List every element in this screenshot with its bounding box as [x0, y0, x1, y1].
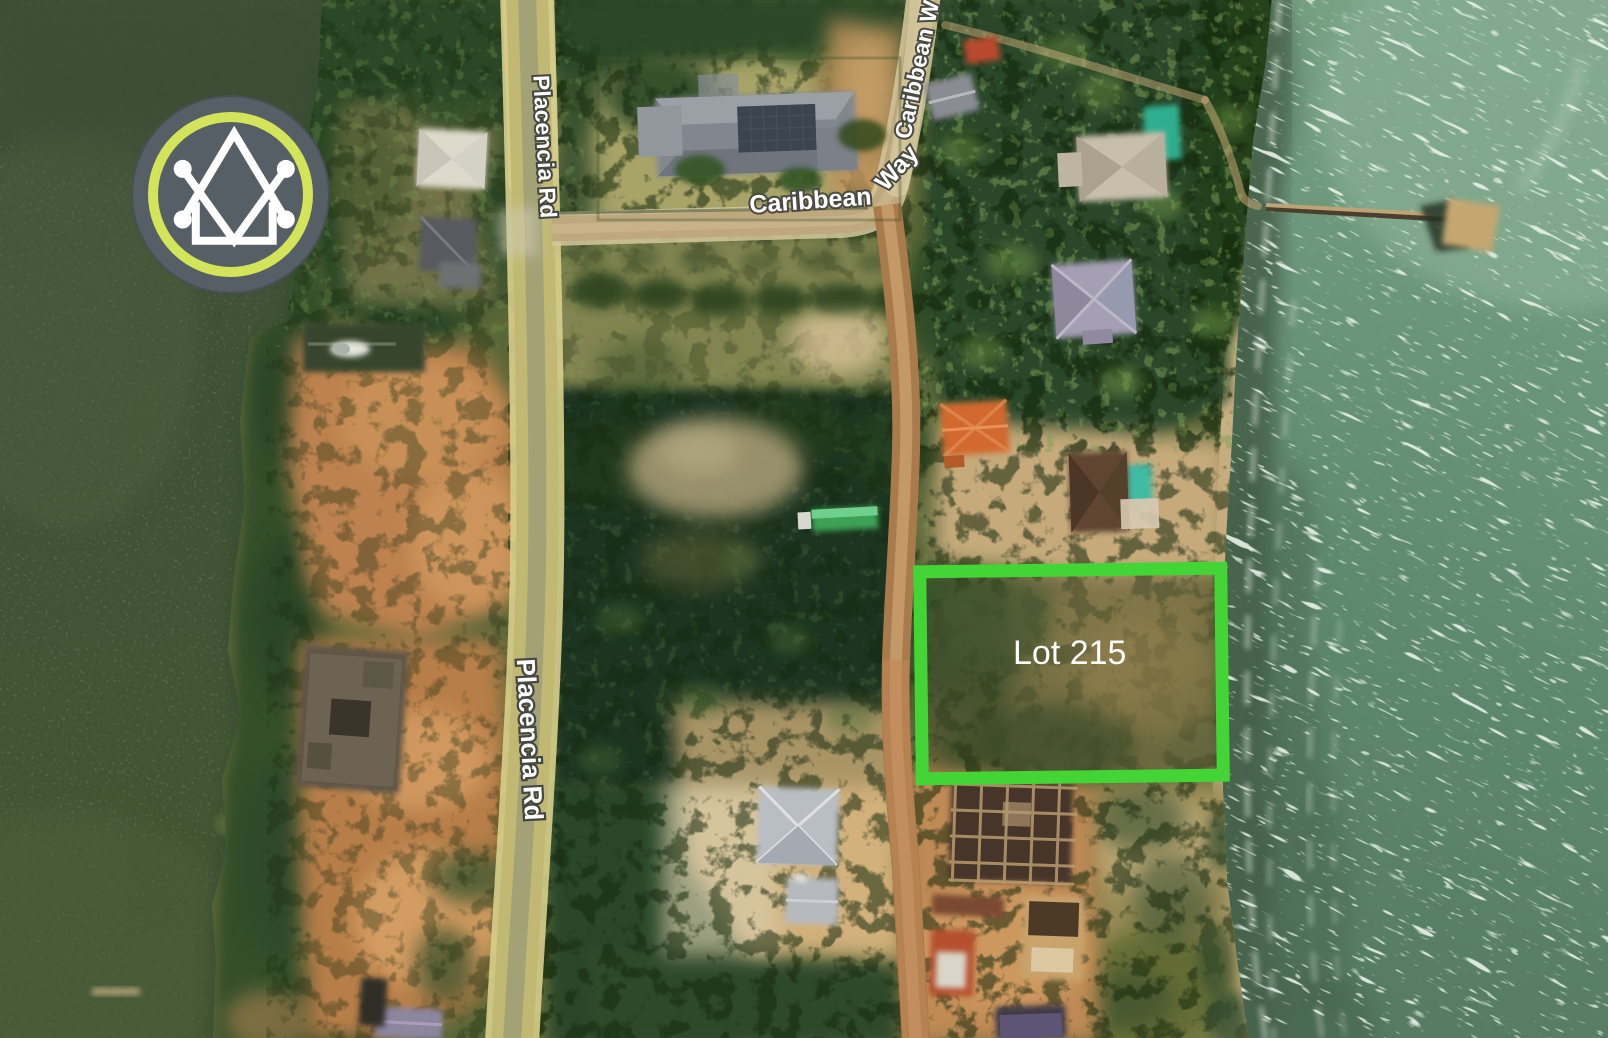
svg-text:Lot 215: Lot 215: [1013, 634, 1126, 672]
